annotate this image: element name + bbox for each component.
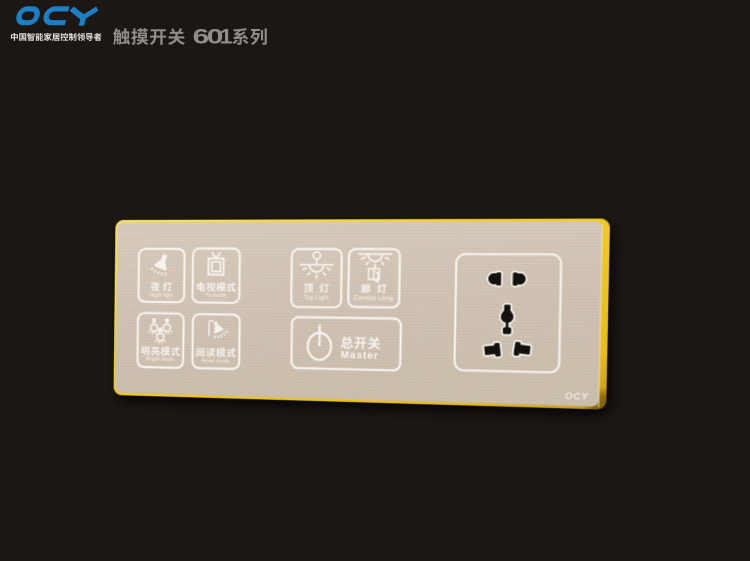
svg-text:Master: Master [341, 349, 379, 361]
svg-text:OCY: OCY [565, 390, 589, 402]
svg-text:Bright mode: Bright mode [146, 357, 175, 364]
svg-text:Top Light: Top Light [304, 295, 329, 302]
svg-text:Night light: Night light [149, 292, 173, 298]
svg-text:Read mode: Read mode [202, 358, 230, 365]
svg-text:1: 1 [220, 24, 233, 48]
svg-text:Tv mode: Tv mode [205, 293, 226, 300]
svg-text:Corridor Lamp: Corridor Lamp [354, 296, 394, 303]
